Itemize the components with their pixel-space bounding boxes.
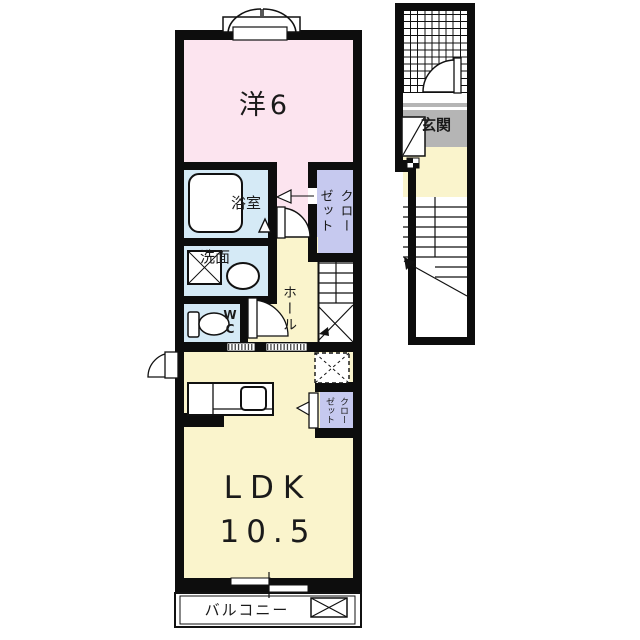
label-hall: ホール — [280, 273, 298, 345]
label-wc: W C — [222, 305, 238, 339]
balcony-text: バルコニー — [205, 599, 290, 620]
hall-text: ホール — [279, 285, 299, 333]
label-western-room: 洋6 — [190, 78, 340, 126]
genkan-step-line — [403, 107, 467, 110]
door-left-exterior — [148, 352, 178, 378]
sink-icon — [227, 263, 259, 289]
closet-text-col2: ゼット — [316, 189, 335, 234]
western-room-text: 洋6 — [239, 83, 291, 122]
floor-plan-canvas: 洋6 浴室 洗面 W C クロー ゼット ホール LDK 10.5 クロー ゼッ… — [0, 0, 640, 640]
ldk-name-text: LDK — [224, 470, 312, 506]
label-bathroom: 浴室 — [224, 193, 268, 211]
ldk-closet-text-col2: ゼット — [323, 397, 336, 424]
ldk-closet-door — [297, 393, 318, 428]
label-closet: クロー ゼット — [318, 178, 352, 244]
ldk-size-text: 10.5 — [219, 514, 316, 550]
label-washroom: 洗面 — [191, 247, 239, 265]
stairs-2f-icon — [318, 262, 353, 342]
washroom-text: 洗面 — [200, 246, 230, 267]
refrigerator-space-icon — [315, 353, 349, 383]
label-ldk-closet: クロー ゼット — [322, 393, 351, 427]
bathroom-text: 浴室 — [231, 192, 261, 213]
label-balcony: バルコニー — [192, 597, 302, 621]
entrance-door — [423, 58, 461, 93]
entrance-text: 玄関 — [421, 114, 451, 135]
label-ldk: LDK 10.5 — [192, 456, 344, 564]
closet-text-col1: クロー — [336, 189, 355, 234]
wc-text-line1: W — [223, 308, 236, 322]
ldk-closet-text-col1: クロー — [337, 397, 350, 424]
window-bottom-sliding — [231, 572, 308, 598]
label-entrance: 玄関 — [410, 116, 462, 133]
wc-text-line2: C — [226, 322, 235, 336]
kitchen-counter-icon — [188, 383, 273, 415]
door-western-room — [277, 207, 310, 238]
